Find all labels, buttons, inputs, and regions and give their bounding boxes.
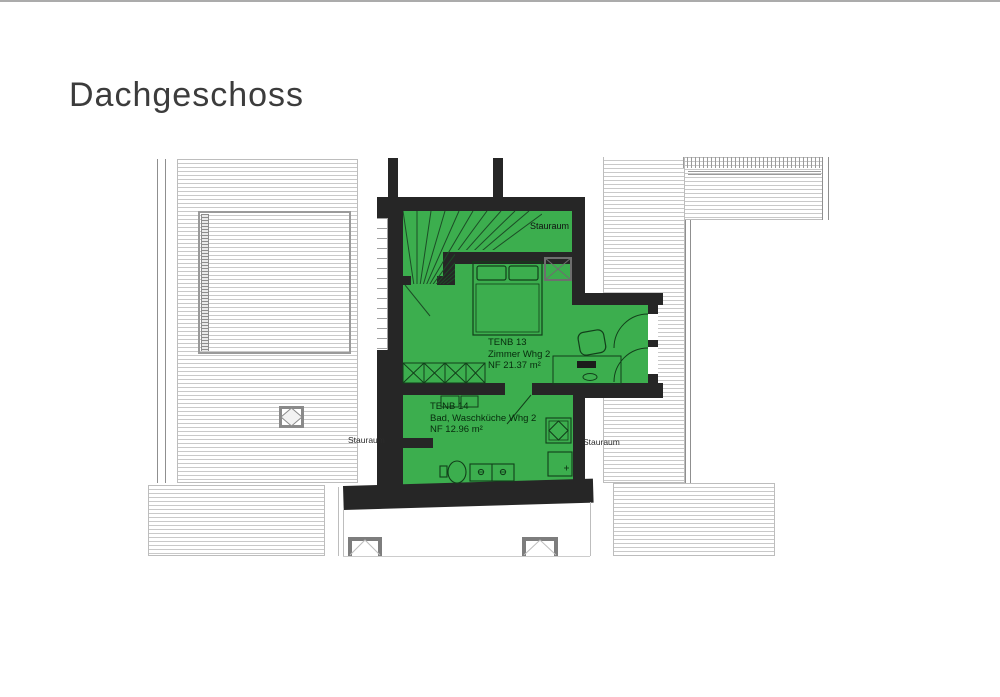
wall-segment-right-upper <box>572 197 585 305</box>
opening-bottom-line <box>343 556 590 557</box>
roof-edge-double-line <box>157 159 166 483</box>
wall-segment-stair <box>443 252 572 264</box>
wall-alcove-top <box>585 293 663 305</box>
wall-chimney-stub <box>493 158 503 198</box>
page-top-border <box>0 0 1000 2</box>
page-title: Dachgeschoss <box>69 76 304 115</box>
room-door-opening-fill <box>505 383 532 395</box>
room-tenb13-label: TENB 13 Zimmer Whg 2 NF 21.37 m² <box>488 337 550 372</box>
wall-alcove-bottom <box>585 383 663 398</box>
wall-between-rooms-right <box>532 383 585 395</box>
roof-hatch-bottom-left <box>148 485 325 556</box>
wall-segment-top <box>377 197 580 211</box>
room-id: TENB 13 <box>488 337 550 349</box>
chimney-icon <box>279 406 304 428</box>
skylight-outline <box>198 211 351 354</box>
roof-ridge-double-line <box>688 171 821 175</box>
floor-plan-page: Dachgeschoss <box>0 0 1000 697</box>
room-area: NF 12.96 m² <box>430 424 536 436</box>
room-name: Zimmer Whg 2 <box>488 349 550 361</box>
wall-segment-left-lower <box>395 348 403 488</box>
door-post <box>648 340 658 347</box>
opening-edge-line <box>343 508 344 556</box>
wall-bath-stub <box>403 438 433 448</box>
label-stauraum-left: Stauraum <box>348 435 385 445</box>
label-stauraum-inner: Stauraum <box>530 221 569 231</box>
dormer-window-icon <box>350 539 380 556</box>
roof-arm-edge-double-line <box>685 220 691 483</box>
opening-edge-line <box>338 487 339 556</box>
wall-door-stub <box>437 276 455 285</box>
room-id: TENB 14 <box>430 401 536 413</box>
skylight-rail <box>201 214 209 351</box>
roof-edge-double-line-right <box>822 157 829 220</box>
roof-ridge-comb <box>683 157 820 168</box>
room-tenb13-alcove-fill <box>572 305 648 383</box>
roof-hatch-left <box>177 159 358 483</box>
label-stauraum-right: Stauraum <box>583 437 620 447</box>
room-name: Bad, Waschküche Whg 2 <box>430 413 536 425</box>
door-post <box>648 374 658 383</box>
dormer-window-icon <box>524 539 556 556</box>
door-post <box>648 305 658 314</box>
knee-wall-window-strip <box>377 218 388 350</box>
room-area: NF 21.37 m² <box>488 360 550 372</box>
wall-door-stub <box>403 276 411 285</box>
wall-between-rooms-left <box>403 383 505 395</box>
opening-edge-line <box>590 502 591 556</box>
roof-hatch-bottom-right <box>613 483 775 556</box>
room-tenb14-label: TENB 14 Bad, Waschküche Whg 2 NF 12.96 m… <box>430 401 536 436</box>
wall-chimney-stub <box>388 158 398 198</box>
